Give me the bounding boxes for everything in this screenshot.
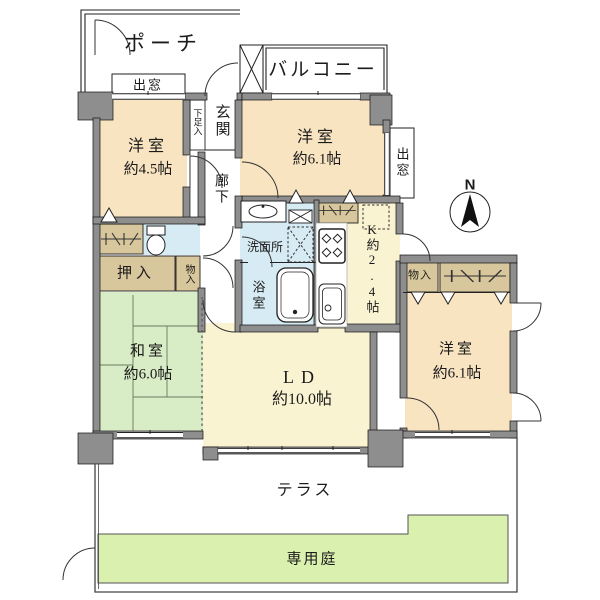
window — [272, 91, 360, 100]
floor-living-dining — [203, 323, 377, 452]
bathtub-icon — [277, 268, 313, 322]
living-dining-size-label: 約10.0帖 — [272, 392, 332, 408]
stove-icon — [319, 229, 345, 263]
east-closet-label: 物入 — [408, 271, 432, 282]
pillar-sw — [78, 433, 113, 464]
toilet-icon — [147, 226, 165, 255]
compass-icon — [450, 192, 490, 232]
cabinet-icon — [289, 210, 312, 223]
hall-closet-door-arc — [203, 258, 233, 288]
wall-corner-nw — [78, 92, 113, 120]
garden-label: 専用庭 — [286, 553, 337, 568]
western1-name-label: 洋室 — [128, 139, 168, 155]
genkan-label: 玄関 — [214, 104, 229, 138]
compass-north-label: N — [465, 178, 476, 193]
shaft-box — [240, 45, 263, 93]
japanese-room-size-label: 約6.0帖 — [124, 368, 173, 383]
hallway-label: 廊下 — [213, 173, 227, 205]
western3-size-label: 約6.1帖 — [433, 367, 482, 382]
hall-closet-label: 物入 — [183, 264, 193, 284]
washbasin-icon — [241, 201, 286, 222]
terrace-label: テラス — [277, 483, 334, 499]
japanese-room-name-label: 和室 — [130, 345, 166, 360]
western3-name-label: 洋室 — [439, 343, 475, 358]
floor-plan-drawing — [0, 0, 600, 600]
kitchen-sink-icon — [319, 284, 345, 324]
bay-window-top-label: 出窓 — [133, 79, 163, 92]
western2-size-label: 約6.1帖 — [293, 153, 342, 168]
floor-japanese-room — [99, 292, 203, 435]
floor-private-garden — [98, 515, 508, 583]
kitchen-label: K約2.4帖 — [366, 222, 379, 314]
western2-name-label: 洋室 — [297, 130, 337, 146]
bay-window-right-label: 出窓 — [396, 147, 409, 179]
floor-plan: ポーチ 出窓 バルコニー 下足入 玄関 廊下 洋室 約4.5帖 洋室 約6.1帖… — [0, 0, 600, 600]
window — [384, 133, 390, 195]
shoe-cabinet-label: 下足入 — [193, 109, 202, 136]
entrance-door-arc — [205, 63, 238, 96]
balcony-label: バルコニー — [268, 61, 378, 80]
garden-gate-arc — [63, 548, 95, 580]
washroom-label: 洗面所 — [247, 241, 283, 253]
western1-size-label: 約4.5帖 — [124, 163, 173, 178]
oshiire-label: 押入 — [117, 267, 155, 282]
floor-western2 — [240, 96, 390, 200]
living-dining-name-label: LD — [283, 368, 321, 386]
bathroom-label: 浴室 — [252, 280, 265, 312]
toilet-door-arc — [203, 226, 233, 256]
pillar-se — [368, 430, 403, 467]
east-door-arc-lower — [513, 393, 541, 421]
east-door-arc-upper — [513, 303, 541, 331]
porch-label: ポーチ — [124, 34, 202, 55]
